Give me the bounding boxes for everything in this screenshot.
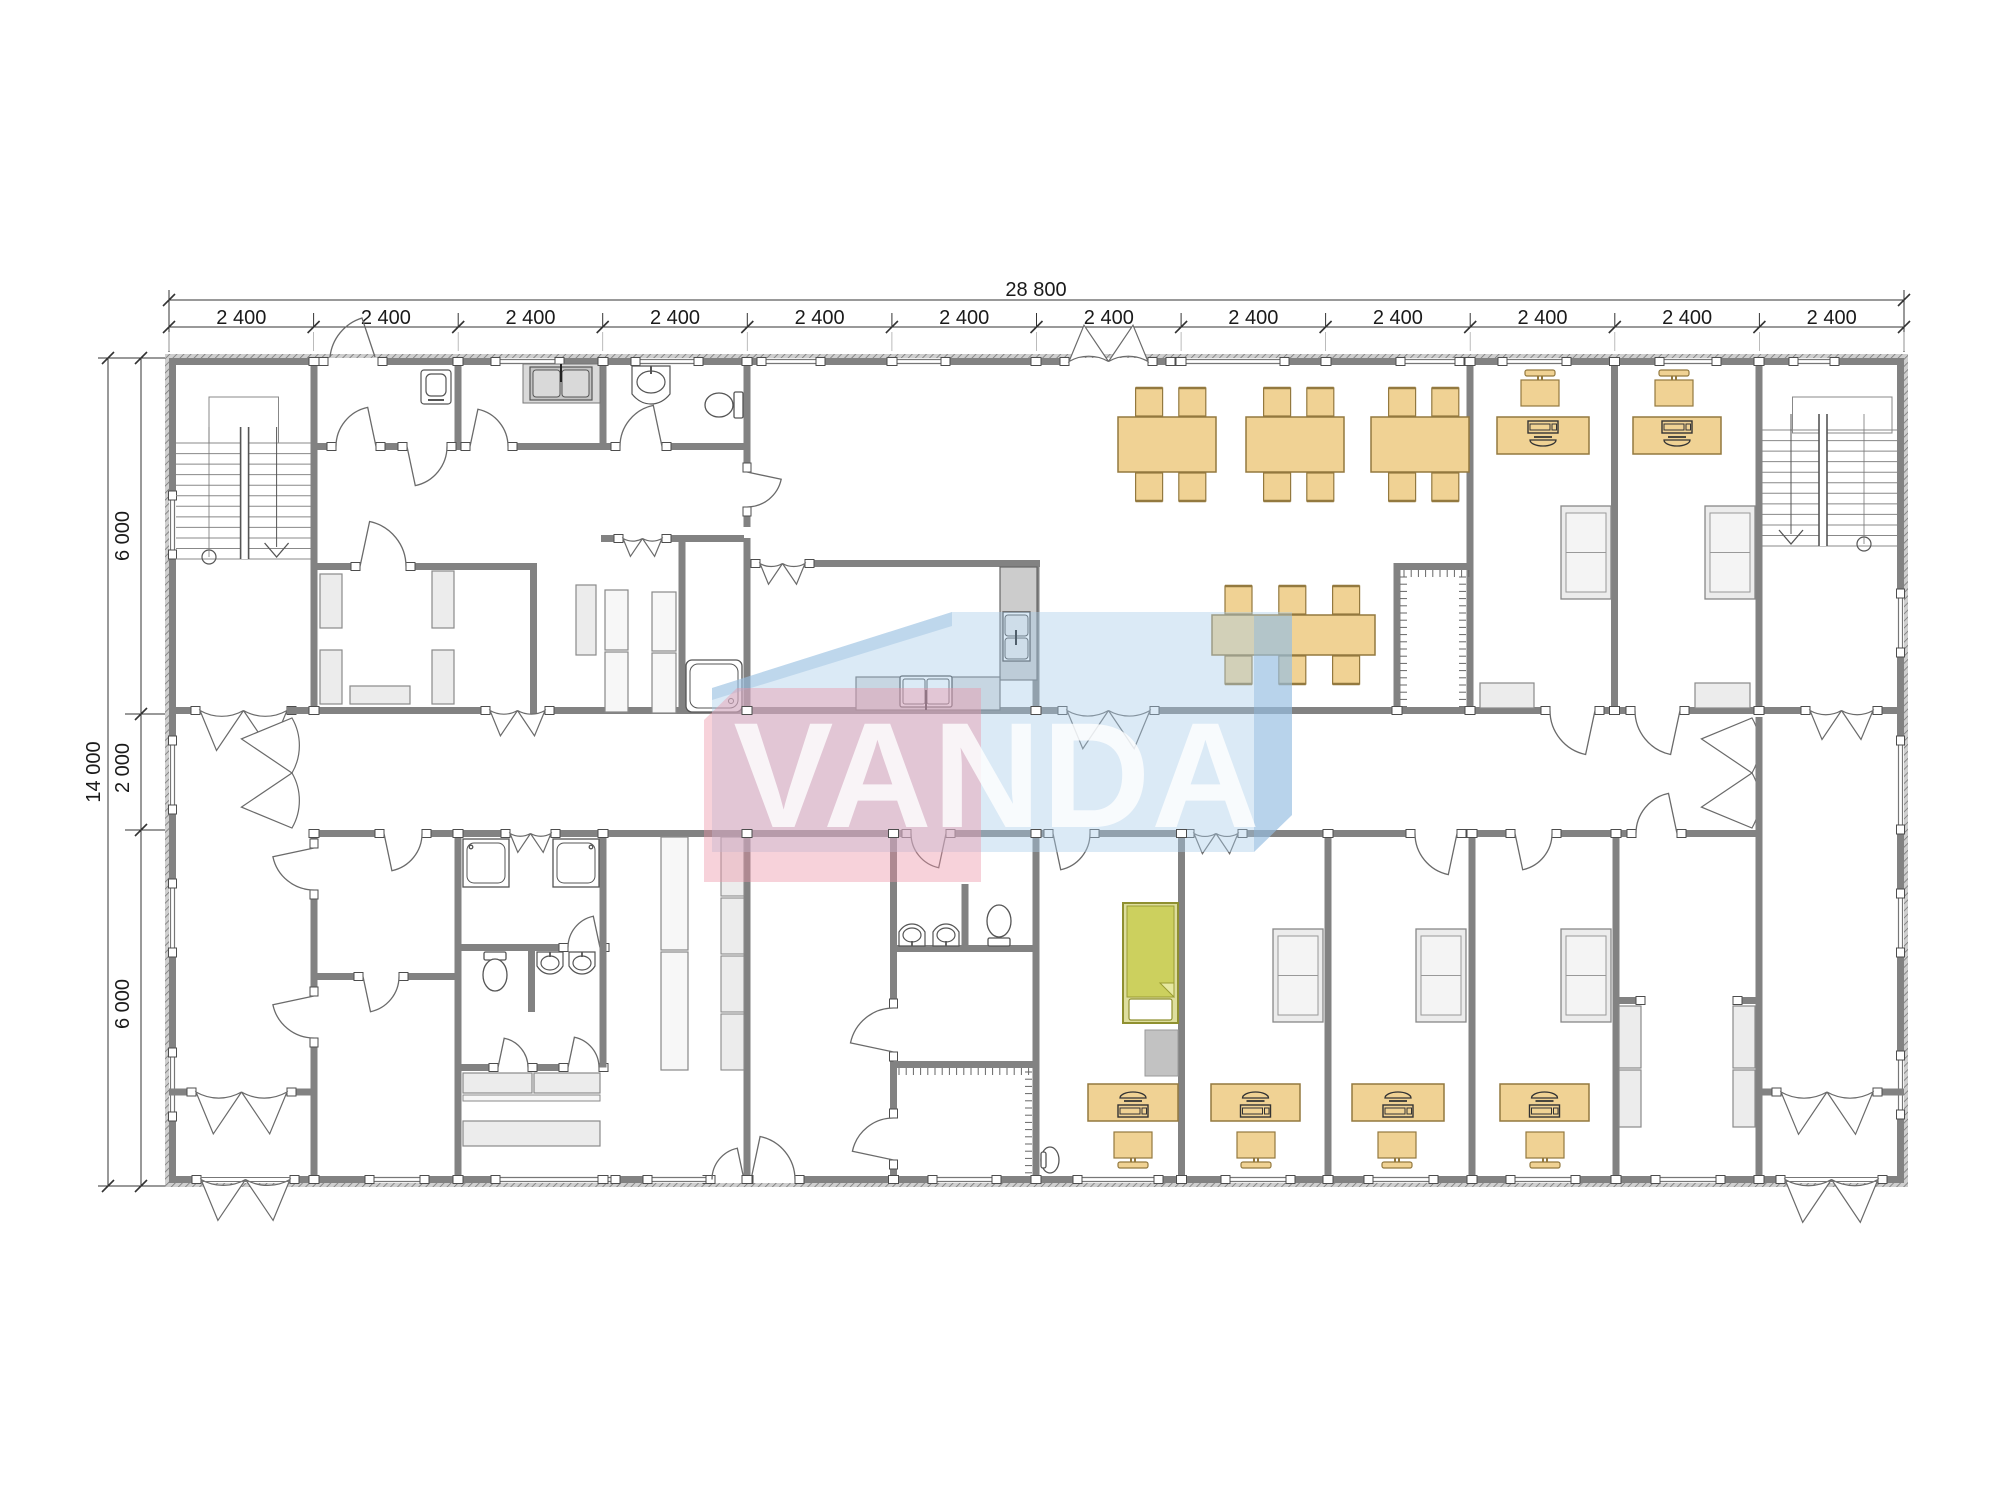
svg-text:2 400: 2 400 [1373,307,1423,329]
svg-text:2 400: 2 400 [1228,307,1278,329]
svg-text:2 400: 2 400 [939,307,989,329]
svg-text:2 400: 2 400 [361,307,411,329]
svg-text:14 000: 14 000 [83,741,105,802]
svg-text:2 400: 2 400 [1662,307,1712,329]
svg-text:2 400: 2 400 [650,307,700,329]
svg-text:6 000: 6 000 [112,511,134,561]
svg-text:2 400: 2 400 [505,307,555,329]
svg-text:2 400: 2 400 [1084,307,1134,329]
svg-text:6 000: 6 000 [112,979,134,1029]
svg-text:2 400: 2 400 [795,307,845,329]
svg-text:2 000: 2 000 [112,743,134,793]
svg-text:2 400: 2 400 [1807,307,1857,329]
svg-text:2 400: 2 400 [216,307,266,329]
svg-text:2 400: 2 400 [1517,307,1567,329]
svg-text:28 800: 28 800 [1005,279,1066,301]
